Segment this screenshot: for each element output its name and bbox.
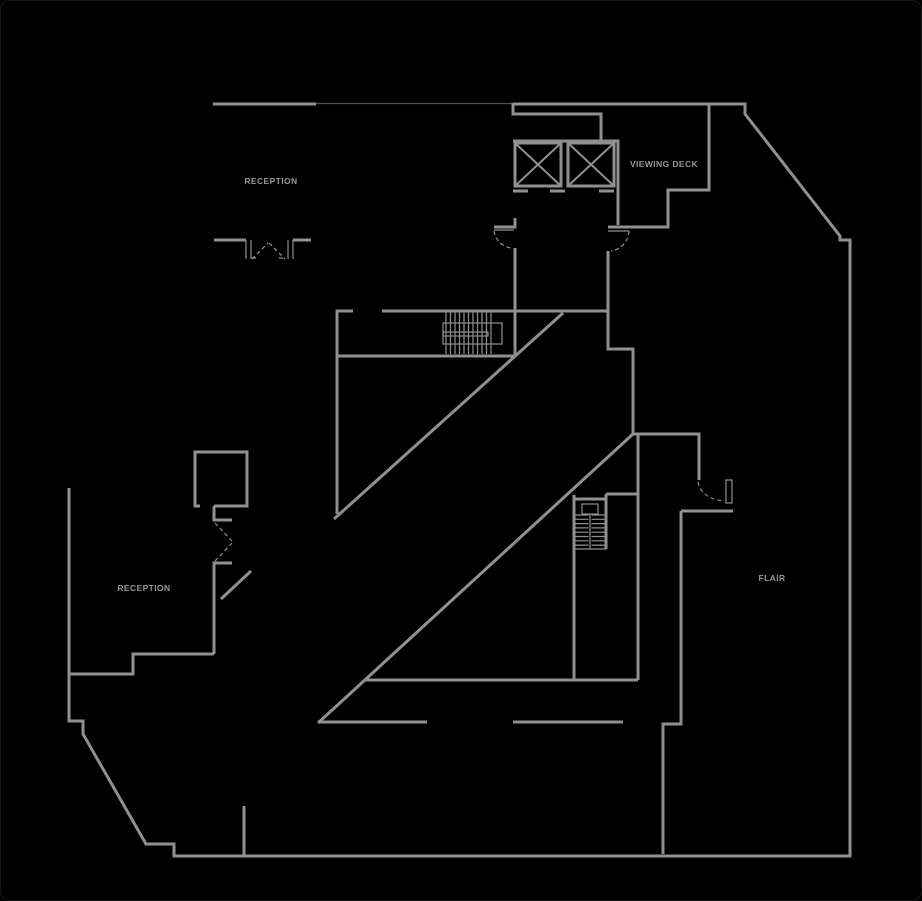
door-leaf — [726, 480, 732, 503]
elevator-icon — [568, 143, 614, 186]
inner-hall — [337, 311, 609, 514]
elevator-block — [513, 103, 618, 225]
main-staircase-icon — [443, 312, 502, 354]
floor-plan-drawing: RECEPTION VIEWING DECK RECEPTION FLAIR — [1, 1, 922, 901]
room-label-viewing-deck: VIEWING DECK — [630, 159, 699, 169]
reception-double-door — [214, 240, 311, 259]
door-swing-arc — [494, 231, 511, 248]
door-leaves — [252, 243, 285, 259]
outer-walls — [69, 104, 850, 857]
bottom-interior-walls — [244, 722, 623, 856]
room-label-flair: FLAIR — [758, 573, 785, 583]
corridor-door — [494, 218, 515, 356]
flair-entry-door — [663, 480, 733, 854]
elevator-icon — [515, 143, 561, 186]
angled-partition — [221, 571, 251, 599]
door-swing-arc — [611, 231, 629, 251]
door-swing-arc — [698, 482, 723, 501]
lower-reception-walls — [195, 452, 251, 654]
door-swing-marks — [215, 523, 232, 561]
small-staircase-icon — [574, 504, 606, 549]
floor-plan-canvas: RECEPTION VIEWING DECK RECEPTION FLAIR — [0, 0, 922, 901]
room-label-reception-upper: RECEPTION — [244, 176, 297, 186]
room-label-reception-lower: RECEPTION — [117, 583, 170, 593]
diagonal-ramps — [318, 313, 633, 723]
